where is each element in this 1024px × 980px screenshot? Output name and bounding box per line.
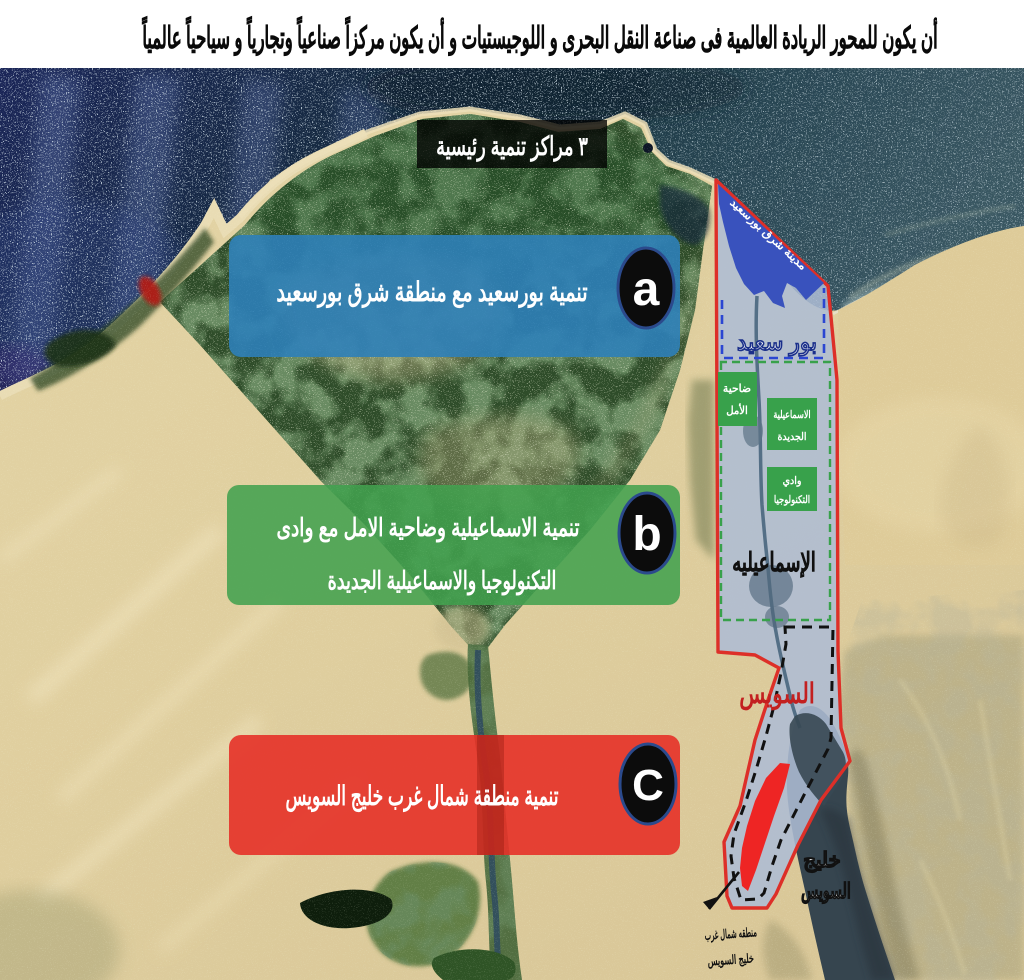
svg-text:التكنولوجيا: التكنولوجيا xyxy=(774,494,811,506)
svg-text:أن يكون للمحور الريادة العالمي: أن يكون للمحور الريادة العالمية فى صناعة… xyxy=(142,15,938,56)
svg-text:تنمية منطقة شمال غرب خليج السو: تنمية منطقة شمال غرب خليج السويس xyxy=(286,781,559,813)
svg-text:C: C xyxy=(632,761,664,810)
svg-text:b: b xyxy=(632,508,661,561)
svg-text:السويس: السويس xyxy=(801,879,851,904)
svg-text:تنمية الاسماعيلية وضاحية الامل: تنمية الاسماعيلية وضاحية الامل مع وادى xyxy=(276,513,579,543)
svg-text:٣ مراكز تنمية رئيسية: ٣ مراكز تنمية رئيسية xyxy=(436,132,588,162)
svg-text:وادي: وادي xyxy=(783,476,802,488)
svg-text:الأمل: الأمل xyxy=(726,403,748,418)
svg-text:a: a xyxy=(633,263,660,316)
svg-text:الاسماعيلية: الاسماعيلية xyxy=(773,409,810,420)
svg-text:تنمية بورسعيد مع منطقة شرق بور: تنمية بورسعيد مع منطقة شرق بورسعيد xyxy=(276,277,588,309)
svg-text:الجديدة: الجديدة xyxy=(777,432,806,444)
svg-text:خليج: خليج xyxy=(803,849,840,873)
svg-text:بور سعيد: بور سعيد xyxy=(737,328,817,357)
svg-text:السويس: السويس xyxy=(739,678,815,711)
svg-text:ضاحية: ضاحية xyxy=(723,383,751,395)
svg-text:الإسماعيليه: الإسماعيليه xyxy=(732,548,816,579)
svg-text:التكنولوجيا والاسماعيلية الجدي: التكنولوجيا والاسماعيلية الجديدة xyxy=(328,566,557,596)
